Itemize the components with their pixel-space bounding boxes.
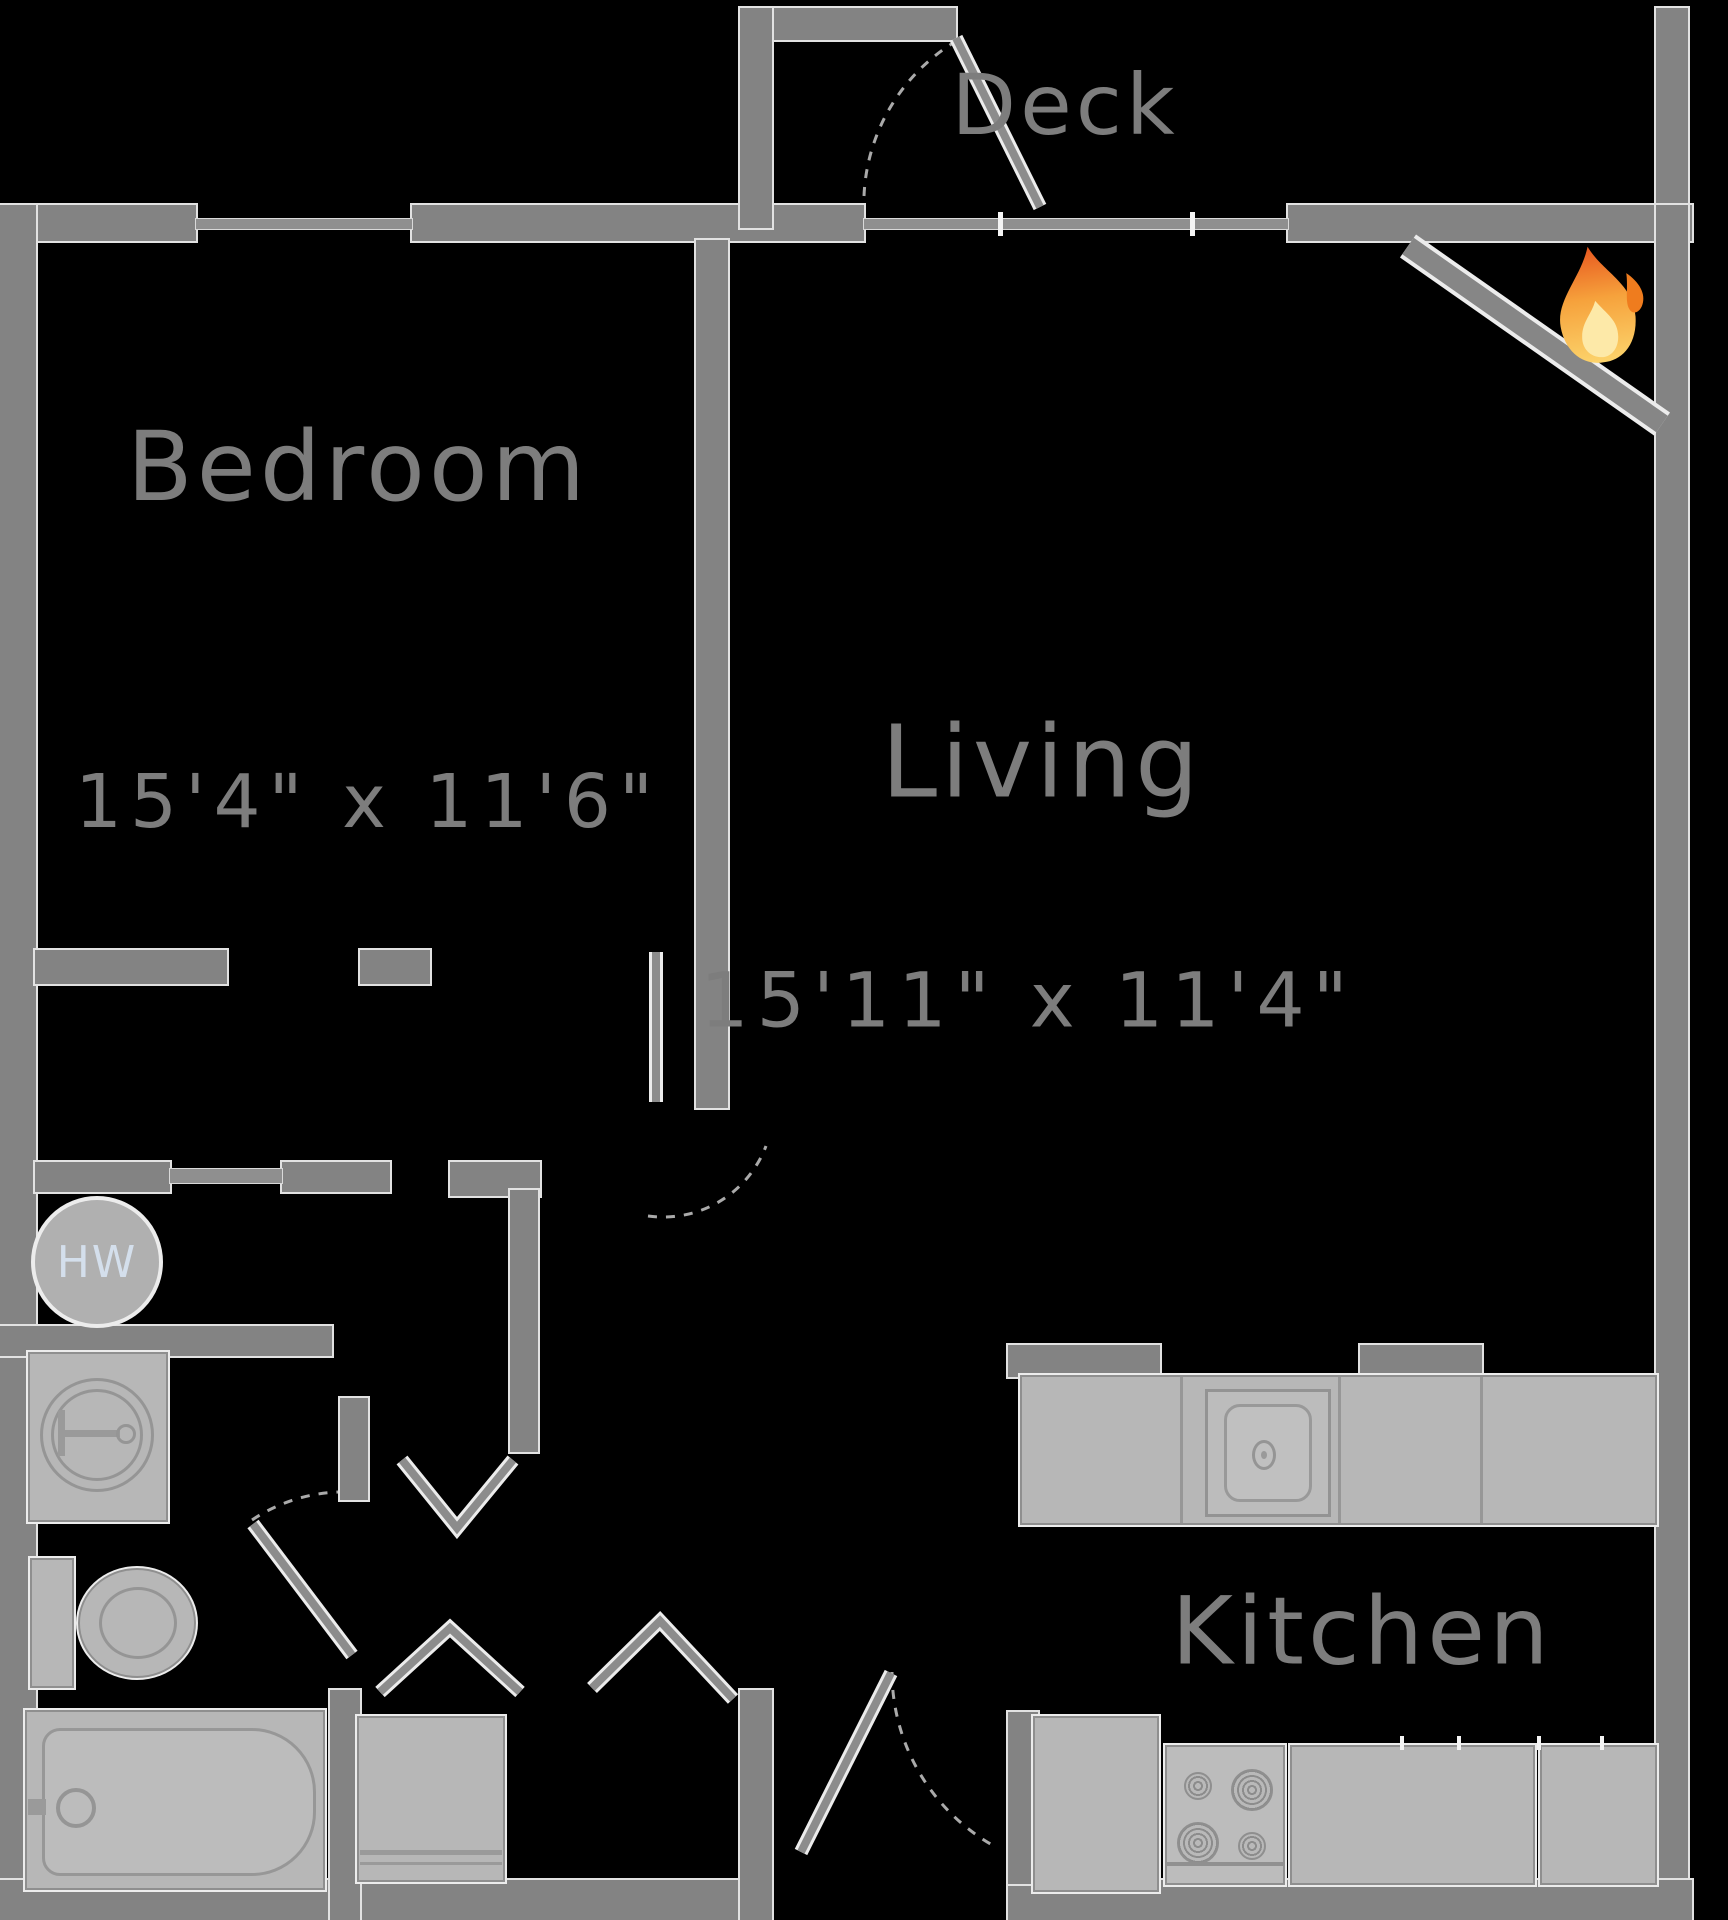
refrigerator: [1033, 1716, 1159, 1892]
stove-burner: [1231, 1769, 1273, 1811]
fireplace-corner-wall: [1408, 246, 1662, 424]
room-label-living: Living: [881, 704, 1202, 821]
wall-closet-vertical: [510, 1190, 538, 1452]
room-dims-living: 15'11" x 11'4": [700, 956, 1355, 1045]
kitchen-counter-bottom-b: [1540, 1745, 1657, 1885]
wall-bathroom-right-lower: [740, 1690, 772, 1920]
washer-line: [360, 1850, 502, 1855]
room-label-bedroom: Bedroom: [127, 411, 589, 523]
closet-bifold-door: [380, 1628, 520, 1692]
stove-front-line: [1167, 1862, 1283, 1866]
closet-bifold-door: [592, 1621, 733, 1699]
wall-top-middle: [412, 205, 864, 241]
water-heater-label: HW: [57, 1237, 138, 1288]
toilet-tank: [30, 1558, 74, 1688]
window-tick: [998, 212, 1003, 236]
wall-top-living: [1288, 205, 1692, 241]
floor-plan: HW: [0, 0, 1728, 1920]
kitchen-counter-bottom-a: [1290, 1745, 1535, 1885]
stove-burner: [1177, 1822, 1219, 1864]
washer-unit: [357, 1716, 505, 1882]
hall-thin-wall: [170, 1169, 282, 1183]
wall-hall-b: [282, 1162, 390, 1192]
kitchen-sink-drain-dot: [1261, 1451, 1267, 1459]
window-tick: [1190, 212, 1195, 236]
bathroom-faucet-spout: [60, 1430, 120, 1437]
washer-line-2: [360, 1862, 502, 1865]
kitchen-counter-divider: [1180, 1377, 1183, 1523]
wall-bathroom-door-stub: [340, 1398, 368, 1500]
toilet-bowl-inner: [99, 1587, 177, 1659]
wall-hw-nook-stub: [360, 950, 430, 984]
stove-burner: [1238, 1832, 1266, 1860]
room-dims-bedroom: 15'4" x 11'6": [75, 759, 661, 845]
room-label-kitchen: Kitchen: [1171, 1578, 1552, 1687]
counter-tick: [1457, 1736, 1461, 1750]
wall-kitchen-stub-right: [1360, 1345, 1482, 1377]
counter-tick: [1600, 1736, 1604, 1750]
wall-deck-top: [740, 8, 956, 40]
bathtub-faucet: [28, 1799, 46, 1815]
counter-tick: [1400, 1736, 1404, 1750]
room-label-deck: Deck: [951, 56, 1178, 154]
bathroom-door: [252, 1492, 352, 1655]
kitchen-counter-divider: [1480, 1377, 1483, 1523]
wall-tub-divider: [330, 1690, 360, 1920]
stove-burner: [1184, 1772, 1212, 1800]
wall-hw-nook-top: [35, 950, 227, 984]
bathtub-drain: [56, 1788, 96, 1828]
wall-kitchen-stub-left: [1008, 1345, 1160, 1377]
bathroom-faucet-knob: [116, 1424, 136, 1444]
living-window: [864, 219, 1288, 229]
wall-hall-a: [35, 1162, 170, 1192]
wall-right-exterior: [1656, 205, 1688, 1920]
entry-door: [801, 1672, 994, 1852]
counter-tick: [1537, 1736, 1541, 1750]
kitchen-counter-divider: [1338, 1377, 1341, 1523]
flame-icon: [1550, 240, 1651, 367]
bedroom-window: [196, 219, 412, 229]
closet-bifold-door: [402, 1460, 513, 1528]
water-heater: HW: [31, 1196, 163, 1328]
wall-deck-left: [740, 8, 772, 228]
